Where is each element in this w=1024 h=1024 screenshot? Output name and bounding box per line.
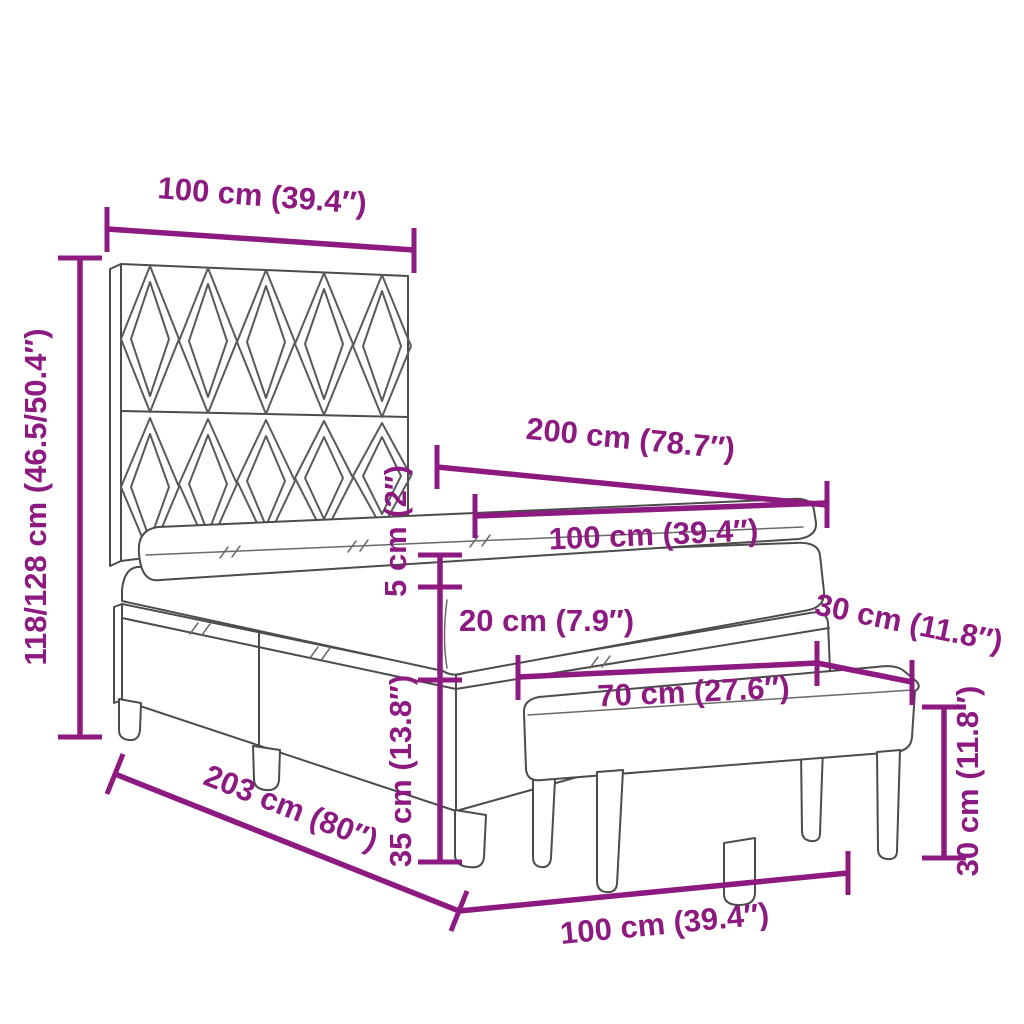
headboard-side-edge [110, 264, 121, 566]
dim-label-topper: 5 cm (2″) [378, 465, 413, 597]
dim-bed-width-bottom: 100 cm (39.4″) [459, 851, 848, 951]
dim-label-mattress: 20 cm (7.9″) [459, 603, 634, 638]
dim-label: 200 cm (78.7″) [525, 411, 737, 466]
dim-label-base: 35 cm (13.8″) [383, 675, 418, 867]
dim-line [459, 873, 848, 911]
diagram-canvas: 100 cm (39.4″) 118/128 cm (46.5/50.4″) 2… [0, 0, 1024, 1024]
base-side-edge [114, 604, 122, 703]
bench-leg-back-right [801, 748, 823, 841]
bed-leg [119, 699, 141, 740]
bench-leg-front-right [877, 750, 900, 859]
dim-line [107, 229, 414, 250]
bed-leg [455, 810, 486, 867]
dim-label: 100 cm (39.4″) [559, 896, 771, 951]
dim-line [437, 467, 827, 505]
bench-leg-front-left [597, 770, 623, 892]
dim-label: 30 cm (11.8″) [950, 686, 985, 877]
dim-label: 100 cm (39.4″) [156, 170, 368, 221]
dim-label: 30 cm (11.8″) [812, 587, 1006, 659]
dim-headboard-width: 100 cm (39.4″) [107, 170, 414, 273]
dimension-diagram: 100 cm (39.4″) 118/128 cm (46.5/50.4″) 2… [0, 0, 1024, 1024]
dim-total-height: 118/128 cm (46.5/50.4″) [18, 258, 102, 737]
bed-drawing [110, 264, 919, 905]
dim-bench-height: 30 cm (11.8″) [922, 686, 985, 877]
bed-leg [724, 838, 755, 905]
dim-label: 118/128 cm (46.5/50.4″) [18, 328, 53, 665]
